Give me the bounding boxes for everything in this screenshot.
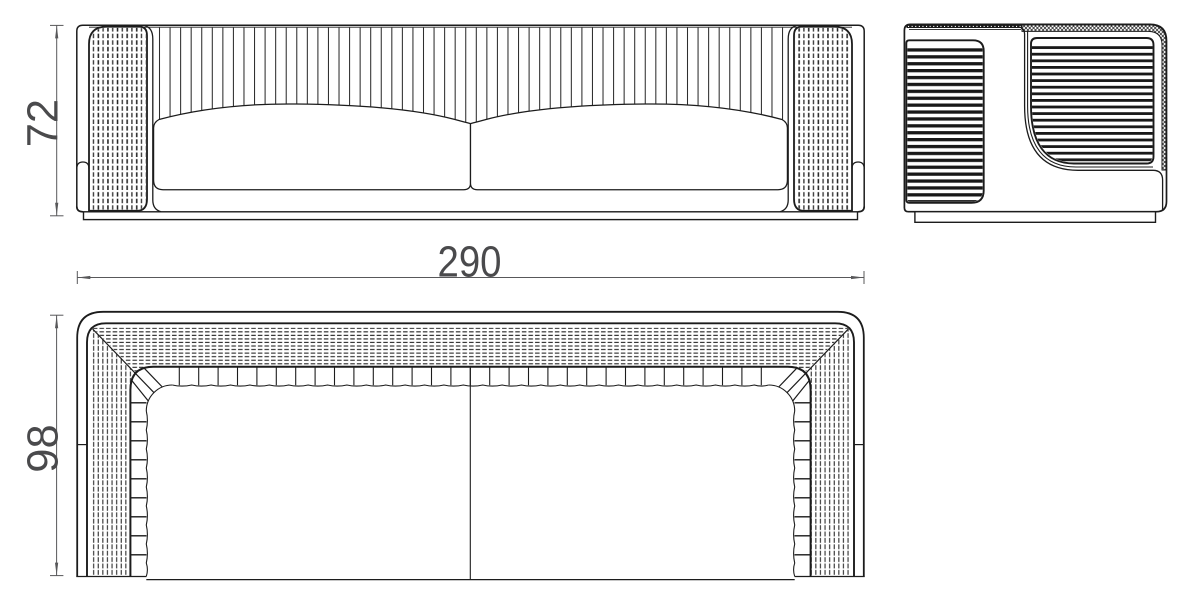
svg-text:290: 290 — [438, 239, 502, 287]
svg-text:72: 72 — [20, 99, 68, 147]
svg-text:98: 98 — [20, 424, 68, 472]
